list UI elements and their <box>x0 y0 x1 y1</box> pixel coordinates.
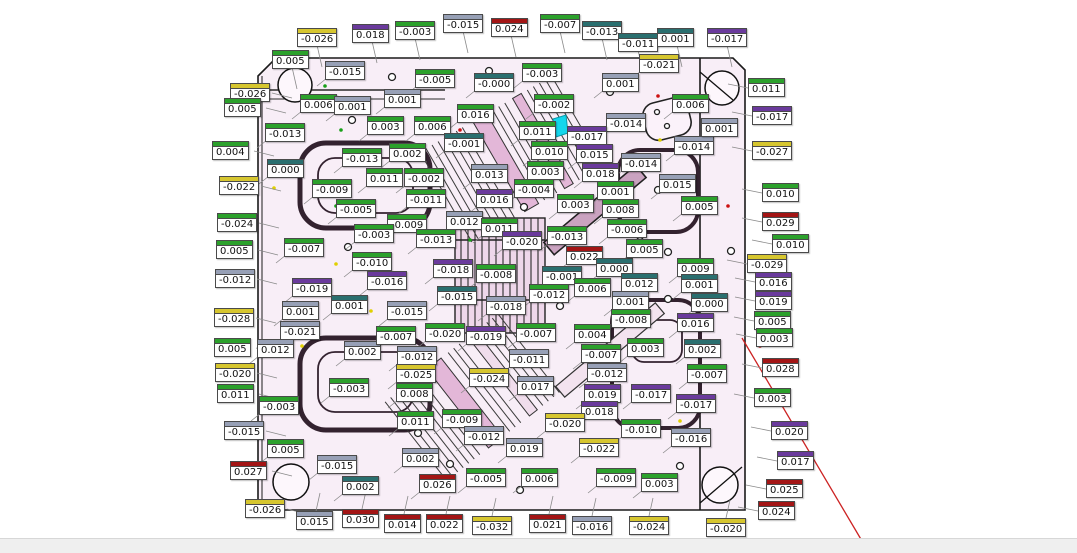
measurement-label[interactable]: -0.020 <box>425 323 465 342</box>
deviation-value: 0.012 <box>622 279 657 291</box>
measurement-label[interactable]: 0.003 <box>527 161 564 180</box>
measurement-label[interactable]: 0.013 <box>471 164 508 183</box>
measurement-label[interactable]: -0.015 <box>224 421 264 440</box>
measurement-label[interactable]: -0.015 <box>443 14 483 33</box>
deviation-value: -0.007 <box>688 370 726 382</box>
measurement-label[interactable]: 0.000 <box>267 159 304 178</box>
measurement-label[interactable]: 0.005 <box>272 50 309 69</box>
measurement-label[interactable]: -0.022 <box>579 438 619 457</box>
deviation-value: -0.022 <box>220 182 258 194</box>
measurement-label[interactable]: -0.024 <box>629 516 669 535</box>
measurement-label[interactable]: -0.000 <box>474 73 514 92</box>
measurement-label[interactable]: -0.013 <box>547 226 587 245</box>
measurement-label[interactable]: -0.018 <box>433 259 473 278</box>
deviation-value: -0.020 <box>216 369 254 381</box>
measurement-label[interactable]: 0.011 <box>397 411 434 430</box>
deviation-value: 0.012 <box>447 217 482 229</box>
measurement-label[interactable]: -0.029 <box>747 254 787 273</box>
deviation-value: -0.010 <box>622 425 660 437</box>
measurement-label[interactable]: -0.026 <box>297 28 337 47</box>
deviation-value: 0.006 <box>673 100 708 112</box>
deviation-value: -0.011 <box>510 355 548 367</box>
measurement-label[interactable]: 0.016 <box>677 313 714 332</box>
deviation-value: 0.011 <box>218 390 253 402</box>
deviation-value: -0.022 <box>580 444 618 456</box>
deviation-value: -0.015 <box>438 292 476 304</box>
measurement-label[interactable]: 0.002 <box>389 143 426 162</box>
deviation-value: -0.017 <box>708 34 746 46</box>
deviation-value: 0.029 <box>763 218 798 230</box>
measurement-label[interactable]: -0.010 <box>621 419 661 438</box>
deviation-value: -0.005 <box>337 205 375 217</box>
deviation-value: -0.013 <box>343 154 381 166</box>
deviation-value: 0.001 <box>598 187 633 199</box>
deviation-value: 0.005 <box>627 245 662 257</box>
deviation-value: 0.001 <box>702 124 737 136</box>
measurement-label[interactable]: 0.010 <box>531 141 568 160</box>
deviation-value: 0.025 <box>767 485 802 497</box>
measurement-label[interactable]: -0.002 <box>404 168 444 187</box>
measurement-label[interactable]: -0.020 <box>706 518 746 537</box>
deviation-value: 0.001 <box>682 280 717 292</box>
measurement-label[interactable]: 0.001 <box>602 73 639 92</box>
measurement-label[interactable]: -0.001 <box>444 133 484 152</box>
deviation-value: -0.003 <box>355 230 393 242</box>
deviation-value: -0.020 <box>503 237 541 249</box>
measurement-label[interactable]: 0.015 <box>296 511 333 530</box>
deviation-value: -0.015 <box>318 461 356 473</box>
measurement-label[interactable]: 0.016 <box>476 189 513 208</box>
deviation-value: 0.019 <box>756 297 791 309</box>
measurement-label[interactable]: 0.010 <box>772 234 809 253</box>
measurement-label[interactable]: -0.013 <box>416 229 456 248</box>
deviation-value: 0.011 <box>398 417 433 429</box>
measurement-label[interactable]: 0.006 <box>521 468 558 487</box>
deviation-value: -0.002 <box>405 174 443 186</box>
measurement-label[interactable]: -0.015 <box>437 286 477 305</box>
measurement-label[interactable]: 0.001 <box>282 301 319 320</box>
deviation-value: 0.005 <box>217 246 252 258</box>
measurement-label[interactable]: 0.015 <box>659 174 696 193</box>
deviation-value: 0.005 <box>225 104 260 116</box>
measurement-label[interactable]: 0.011 <box>519 121 556 140</box>
deviation-value: 0.001 <box>613 297 648 309</box>
measurement-label[interactable]: -0.003 <box>259 396 299 415</box>
measurement-label[interactable]: -0.012 <box>397 346 437 365</box>
measurement-label[interactable]: 0.012 <box>621 273 658 292</box>
measurement-label[interactable]: -0.020 <box>502 231 542 250</box>
deviation-value: -0.021 <box>640 60 678 72</box>
deviation-value: -0.020 <box>546 419 584 431</box>
deviation-value: -0.002 <box>535 100 573 112</box>
deviation-value: 0.003 <box>368 122 403 134</box>
measurement-label[interactable]: 0.001 <box>657 28 694 47</box>
deviation-value: -0.017 <box>568 132 606 144</box>
measurement-label[interactable]: -0.005 <box>336 199 376 218</box>
deviation-value: 0.008 <box>397 389 432 401</box>
inspection-viewport: -0.0260.018-0.003-0.0150.024-0.007-0.013… <box>0 0 1077 553</box>
measurement-label[interactable]: -0.021 <box>280 321 320 340</box>
deviation-value: -0.015 <box>388 307 426 319</box>
measurement-label[interactable]: 0.021 <box>529 514 566 533</box>
measurement-label[interactable]: -0.002 <box>534 94 574 113</box>
measurement-label[interactable]: 0.005 <box>626 239 663 258</box>
measurement-label[interactable]: -0.017 <box>631 384 671 403</box>
deviation-value: -0.013 <box>583 27 621 39</box>
measurement-label[interactable]: -0.005 <box>466 468 506 487</box>
measurement-label[interactable]: -0.003 <box>522 63 562 82</box>
deviation-value: 0.001 <box>332 301 367 313</box>
deviation-value: -0.016 <box>573 522 611 534</box>
measurement-label[interactable]: -0.014 <box>621 153 661 172</box>
measurement-label[interactable]: -0.003 <box>329 378 369 397</box>
deviation-value: 0.012 <box>258 345 293 357</box>
measurement-label[interactable]: 0.004 <box>212 141 249 160</box>
measurement-label[interactable]: -0.016 <box>572 516 612 535</box>
deviation-value: -0.007 <box>377 332 415 344</box>
measurement-label[interactable]: -0.011 <box>509 349 549 368</box>
deviation-value: -0.018 <box>434 265 472 277</box>
measurement-label[interactable]: -0.009 <box>312 179 352 198</box>
measurement-label[interactable]: 0.025 <box>766 479 803 498</box>
deviation-value: -0.001 <box>445 139 483 151</box>
deviation-value: 0.003 <box>628 344 663 356</box>
measurement-label[interactable]: -0.024 <box>217 213 257 232</box>
deviation-value: -0.021 <box>281 327 319 339</box>
measurement-label[interactable]: -0.011 <box>618 33 658 52</box>
deviation-value: 0.018 <box>583 169 618 181</box>
measurement-label[interactable]: 0.011 <box>748 78 785 97</box>
deviation-value: -0.012 <box>530 290 568 302</box>
measurement-label[interactable]: 0.014 <box>384 514 421 533</box>
measurement-label[interactable]: 0.001 <box>384 89 421 108</box>
deviation-value: 0.006 <box>301 100 336 112</box>
measurement-label[interactable]: 0.006 <box>672 94 709 113</box>
measurement-label[interactable]: -0.012 <box>529 284 569 303</box>
measurement-label[interactable]: 0.018 <box>352 24 389 43</box>
deviation-value: 0.020 <box>772 427 807 439</box>
measurement-label[interactable]: 0.026 <box>419 474 456 493</box>
measurement-label[interactable]: 0.030 <box>342 509 379 528</box>
deviation-value: 0.015 <box>577 150 612 162</box>
measurement-label[interactable]: 0.002 <box>342 476 379 495</box>
deviation-value: -0.007 <box>541 20 579 32</box>
measurement-label[interactable]: 0.008 <box>602 199 639 218</box>
deviation-value: -0.012 <box>216 275 254 287</box>
deviation-value: 0.027 <box>231 467 266 479</box>
measurement-labels-layer: -0.0260.018-0.003-0.0150.024-0.007-0.013… <box>0 0 1077 553</box>
deviation-value: -0.024 <box>470 374 508 386</box>
measurement-label[interactable]: 0.018 <box>582 163 619 182</box>
status-bar <box>0 538 1077 553</box>
measurement-label[interactable]: 0.012 <box>257 339 294 358</box>
deviation-value: 0.015 <box>660 180 695 192</box>
deviation-value: 0.002 <box>685 345 720 357</box>
deviation-value: -0.017 <box>753 112 791 124</box>
measurement-label[interactable]: -0.015 <box>387 301 427 320</box>
measurement-label[interactable]: -0.015 <box>317 455 357 474</box>
deviation-value: -0.005 <box>467 474 505 486</box>
deviation-value: -0.014 <box>607 119 645 131</box>
measurement-label[interactable]: 0.019 <box>506 438 543 457</box>
measurement-label[interactable]: -0.032 <box>472 516 512 535</box>
deviation-value: -0.013 <box>548 232 586 244</box>
measurement-label[interactable]: -0.007 <box>376 326 416 345</box>
measurement-label[interactable]: 0.001 <box>681 274 718 293</box>
measurement-label[interactable]: -0.013 <box>582 21 622 40</box>
measurement-label[interactable]: -0.008 <box>476 264 516 283</box>
deviation-value: -0.008 <box>612 315 650 327</box>
measurement-label[interactable]: 0.017 <box>777 451 814 470</box>
measurement-label[interactable]: 0.002 <box>402 448 439 467</box>
deviation-value: -0.004 <box>515 185 553 197</box>
deviation-value: 0.002 <box>390 149 425 161</box>
deviation-value: 0.000 <box>692 299 727 311</box>
measurement-label[interactable]: 0.003 <box>754 388 791 407</box>
deviation-value: 0.018 <box>582 407 617 419</box>
measurement-label[interactable]: 0.017 <box>517 376 554 395</box>
deviation-value: -0.006 <box>608 225 646 237</box>
measurement-label[interactable]: 0.001 <box>597 181 634 200</box>
measurement-label[interactable]: -0.017 <box>676 394 716 413</box>
measurement-label[interactable]: -0.027 <box>752 141 792 160</box>
measurement-label[interactable]: -0.006 <box>607 219 647 238</box>
measurement-label[interactable]: 0.011 <box>217 384 254 403</box>
measurement-label[interactable]: 0.001 <box>612 291 649 310</box>
measurement-label[interactable]: 0.005 <box>214 338 251 357</box>
deviation-value: -0.016 <box>672 434 710 446</box>
measurement-label[interactable]: -0.015 <box>325 61 365 80</box>
measurement-label[interactable]: 0.000 <box>691 293 728 312</box>
measurement-label[interactable]: -0.016 <box>671 428 711 447</box>
deviation-value: -0.025 <box>397 370 435 382</box>
deviation-value: -0.012 <box>465 432 503 444</box>
deviation-value: 0.006 <box>522 474 557 486</box>
measurement-label[interactable]: 0.018 <box>581 401 618 420</box>
measurement-label[interactable]: -0.005 <box>415 69 455 88</box>
measurement-label[interactable]: -0.022 <box>219 176 259 195</box>
deviation-value: 0.001 <box>385 95 420 107</box>
deviation-value: -0.017 <box>677 400 715 412</box>
deviation-value: -0.032 <box>473 522 511 534</box>
deviation-value: -0.026 <box>298 34 336 46</box>
measurement-label[interactable]: -0.012 <box>464 426 504 445</box>
deviation-value: 0.017 <box>518 382 553 394</box>
measurement-label[interactable]: 0.004 <box>574 324 611 343</box>
deviation-value: 0.003 <box>528 167 563 179</box>
measurement-label[interactable]: 0.001 <box>701 118 738 137</box>
measurement-label[interactable]: 0.001 <box>331 295 368 314</box>
deviation-value: -0.009 <box>597 474 635 486</box>
deviation-value: -0.015 <box>225 427 263 439</box>
measurement-label[interactable]: -0.024 <box>469 368 509 387</box>
deviation-value: -0.011 <box>407 195 445 207</box>
deviation-value: 0.015 <box>297 517 332 529</box>
measurement-label[interactable]: -0.010 <box>352 252 392 271</box>
deviation-value: -0.017 <box>632 390 670 402</box>
measurement-label[interactable]: -0.018 <box>486 296 526 315</box>
measurement-label[interactable]: -0.007 <box>540 14 580 33</box>
deviation-value: 0.011 <box>520 127 555 139</box>
measurement-label[interactable]: -0.017 <box>752 106 792 125</box>
deviation-value: -0.000 <box>475 79 513 91</box>
measurement-label[interactable]: 0.012 <box>446 211 483 230</box>
deviation-value: 0.003 <box>755 394 790 406</box>
measurement-label[interactable]: 0.016 <box>457 104 494 123</box>
deviation-value: -0.012 <box>398 352 436 364</box>
measurement-label[interactable]: 0.002 <box>684 339 721 358</box>
measurement-label[interactable]: 0.027 <box>230 461 267 480</box>
measurement-label[interactable]: 0.005 <box>681 196 718 215</box>
deviation-value: 0.016 <box>458 110 493 122</box>
deviation-value: 0.001 <box>283 307 318 319</box>
measurement-label[interactable]: -0.020 <box>215 363 255 382</box>
measurement-label[interactable]: -0.014 <box>606 113 646 132</box>
measurement-label[interactable]: -0.020 <box>545 413 585 432</box>
deviation-value: 0.026 <box>420 480 455 492</box>
measurement-label[interactable]: 0.003 <box>367 116 404 135</box>
deviation-value: 0.005 <box>215 344 250 356</box>
deviation-value: 0.018 <box>353 30 388 42</box>
deviation-value: 0.008 <box>603 205 638 217</box>
measurement-label[interactable]: -0.007 <box>687 364 727 383</box>
measurement-label[interactable]: 0.003 <box>557 194 594 213</box>
deviation-value: 0.004 <box>213 147 248 159</box>
measurement-label[interactable]: 0.003 <box>641 473 678 492</box>
measurement-label[interactable]: -0.007 <box>516 323 556 342</box>
deviation-value: -0.016 <box>368 277 406 289</box>
deviation-value: 0.006 <box>575 284 610 296</box>
measurement-label[interactable]: -0.019 <box>292 278 332 297</box>
measurement-label[interactable]: -0.007 <box>284 238 324 257</box>
deviation-value: -0.003 <box>260 402 298 414</box>
deviation-value: 0.005 <box>273 56 308 68</box>
deviation-value: -0.007 <box>582 350 620 362</box>
measurement-label[interactable]: 0.011 <box>366 168 403 187</box>
deviation-value: 0.003 <box>757 334 792 346</box>
deviation-value: 0.016 <box>477 195 512 207</box>
deviation-value: -0.020 <box>426 329 464 341</box>
measurement-label[interactable]: 0.010 <box>762 183 799 202</box>
deviation-value: 0.000 <box>268 165 303 177</box>
deviation-value: 0.010 <box>773 240 808 252</box>
deviation-value: 0.001 <box>335 102 370 114</box>
deviation-value: -0.014 <box>675 142 713 154</box>
measurement-label[interactable]: 0.005 <box>267 439 304 458</box>
measurement-label[interactable]: -0.016 <box>367 271 407 290</box>
measurement-label[interactable]: 0.005 <box>224 98 261 117</box>
measurement-label[interactable]: -0.009 <box>596 468 636 487</box>
measurement-label[interactable]: -0.026 <box>245 499 285 518</box>
deviation-value: 0.016 <box>756 278 791 290</box>
measurement-label[interactable]: 0.020 <box>771 421 808 440</box>
deviation-value: 0.019 <box>507 444 542 456</box>
deviation-value: 0.001 <box>658 34 693 46</box>
measurement-label[interactable]: -0.003 <box>354 224 394 243</box>
deviation-value: 0.002 <box>345 347 380 359</box>
deviation-value: 0.024 <box>492 24 527 36</box>
deviation-value: 0.022 <box>427 520 462 532</box>
measurement-label[interactable]: -0.011 <box>406 189 446 208</box>
measurement-label[interactable]: 0.015 <box>576 144 613 163</box>
deviation-value: -0.015 <box>326 67 364 79</box>
measurement-label[interactable]: 0.006 <box>300 94 337 113</box>
deviation-value: -0.013 <box>266 129 304 141</box>
deviation-value: -0.010 <box>353 258 391 270</box>
deviation-value: -0.003 <box>396 27 434 39</box>
measurement-label[interactable]: 0.008 <box>396 383 433 402</box>
deviation-value: -0.019 <box>293 284 331 296</box>
measurement-label[interactable]: 0.005 <box>216 240 253 259</box>
deviation-value: 0.002 <box>343 482 378 494</box>
deviation-value: 0.005 <box>682 202 717 214</box>
measurement-label[interactable]: -0.004 <box>514 179 554 198</box>
deviation-value: -0.019 <box>467 332 505 344</box>
measurement-label[interactable]: -0.014 <box>674 136 714 155</box>
deviation-value: -0.011 <box>619 39 657 51</box>
measurement-label[interactable]: -0.013 <box>342 148 382 167</box>
deviation-value: 0.024 <box>759 507 794 519</box>
measurement-label[interactable]: -0.013 <box>265 123 305 142</box>
measurement-label[interactable]: 0.029 <box>762 212 799 231</box>
deviation-value: -0.014 <box>622 159 660 171</box>
measurement-label[interactable]: -0.028 <box>214 308 254 327</box>
measurement-label[interactable]: -0.008 <box>611 309 651 328</box>
deviation-value: 0.017 <box>778 457 813 469</box>
deviation-value: -0.005 <box>416 75 454 87</box>
measurement-label[interactable]: -0.025 <box>396 364 436 383</box>
measurement-label[interactable]: 0.019 <box>755 291 792 310</box>
measurement-label[interactable]: 0.022 <box>426 514 463 533</box>
deviation-value: 0.030 <box>343 515 378 527</box>
measurement-label[interactable]: -0.021 <box>639 54 679 73</box>
measurement-label[interactable]: -0.007 <box>581 344 621 363</box>
measurement-label[interactable]: -0.017 <box>707 28 747 47</box>
deviation-value: 0.011 <box>367 174 402 186</box>
deviation-value: 0.010 <box>763 189 798 201</box>
deviation-value: 0.013 <box>472 170 507 182</box>
deviation-value: -0.026 <box>246 505 284 517</box>
measurement-label[interactable]: 0.024 <box>758 501 795 520</box>
measurement-label[interactable]: -0.012 <box>587 363 627 382</box>
deviation-value: -0.020 <box>707 524 745 536</box>
measurement-label[interactable]: 0.001 <box>334 96 371 115</box>
deviation-value: 0.003 <box>558 200 593 212</box>
deviation-value: 0.001 <box>603 79 638 91</box>
measurement-label[interactable]: -0.012 <box>215 269 255 288</box>
measurement-label[interactable]: 0.003 <box>756 328 793 347</box>
measurement-label[interactable]: -0.003 <box>395 21 435 40</box>
deviation-value: 0.028 <box>763 364 798 376</box>
measurement-label[interactable]: -0.019 <box>466 326 506 345</box>
deviation-value: 0.011 <box>749 84 784 96</box>
deviation-value: -0.009 <box>313 185 351 197</box>
deviation-value: -0.003 <box>523 69 561 81</box>
deviation-value: 0.004 <box>575 330 610 342</box>
measurement-label[interactable]: 0.024 <box>491 18 528 37</box>
deviation-value: -0.018 <box>487 302 525 314</box>
deviation-value: 0.014 <box>385 520 420 532</box>
deviation-value: -0.012 <box>588 369 626 381</box>
measurement-label[interactable]: -0.017 <box>567 126 607 145</box>
measurement-label[interactable]: 0.028 <box>762 358 799 377</box>
measurement-label[interactable]: 0.003 <box>627 338 664 357</box>
measurement-label[interactable]: 0.006 <box>574 278 611 297</box>
deviation-value: -0.015 <box>444 20 482 32</box>
measurement-label[interactable]: 0.016 <box>755 272 792 291</box>
deviation-value: -0.013 <box>417 235 455 247</box>
deviation-value: 0.003 <box>642 479 677 491</box>
